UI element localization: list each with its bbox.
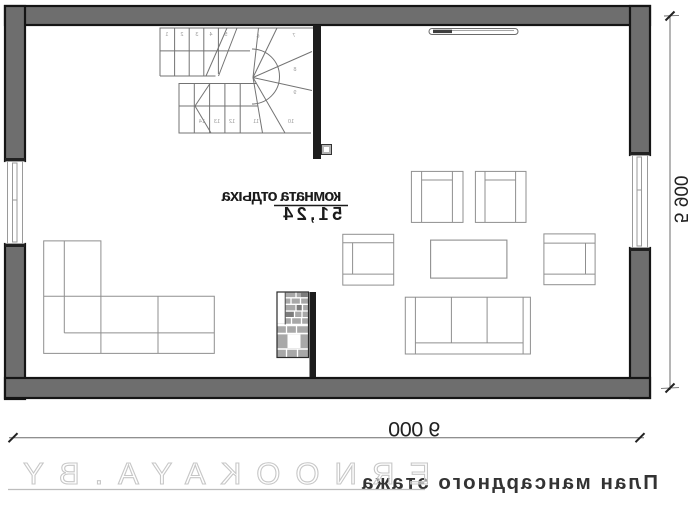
svg-text:11: 11 — [253, 119, 259, 125]
svg-text:комната отдыха: комната отдыха — [221, 187, 342, 205]
svg-text:5 900: 5 900 — [670, 176, 691, 224]
svg-text:6: 6 — [256, 34, 259, 40]
svg-text:12: 12 — [229, 119, 235, 125]
svg-text:2: 2 — [180, 32, 183, 38]
svg-text:9: 9 — [293, 90, 296, 96]
svg-text:51,24: 51,24 — [280, 204, 343, 224]
svg-text:7: 7 — [292, 33, 295, 39]
svg-text:10: 10 — [288, 119, 294, 125]
svg-text:14: 14 — [199, 119, 205, 125]
svg-text:ERNOOKAYA.BY: ERNOOKAYA.BY — [8, 456, 430, 491]
svg-text:8: 8 — [293, 67, 296, 73]
svg-text:1: 1 — [165, 32, 168, 38]
svg-text:5: 5 — [224, 32, 227, 38]
svg-text:3: 3 — [195, 32, 198, 38]
svg-text:4: 4 — [209, 32, 212, 38]
svg-text:9 000: 9 000 — [388, 417, 440, 441]
svg-text:13: 13 — [214, 119, 220, 125]
